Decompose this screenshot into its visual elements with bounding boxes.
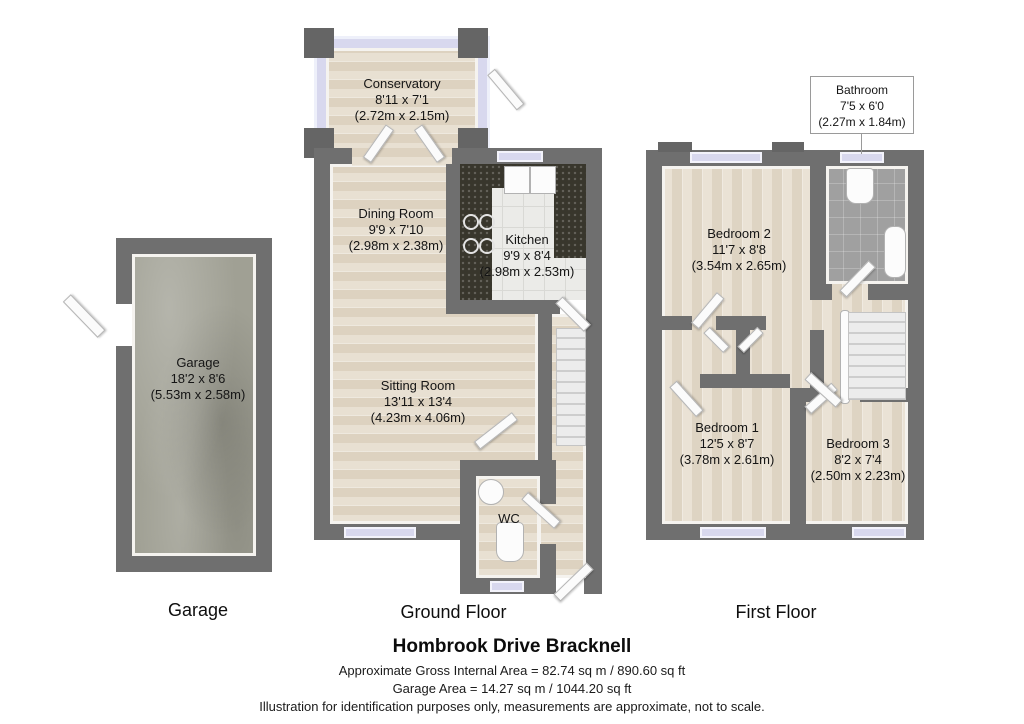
window bbox=[497, 151, 543, 162]
wall-post bbox=[304, 28, 334, 58]
wall bbox=[868, 284, 908, 300]
wall-post bbox=[658, 142, 692, 152]
room-size-metric: (2.72m x 2.15m) bbox=[312, 108, 492, 124]
room-name: Garage bbox=[118, 355, 278, 371]
room-label-dining-room: Dining Room 9'9 x 7'10 (2.98m x 2.38m) bbox=[318, 206, 474, 254]
window bbox=[840, 152, 884, 163]
wall bbox=[116, 556, 272, 572]
room-name: Bedroom 1 bbox=[646, 420, 808, 436]
room-size-metric: (2.50m x 2.23m) bbox=[780, 468, 936, 484]
wall bbox=[646, 150, 662, 540]
room-size-imperial: 7'5 x 6'0 bbox=[811, 98, 913, 114]
room-size-metric: (3.54m x 2.65m) bbox=[660, 258, 818, 274]
staircase bbox=[556, 328, 586, 446]
room-size-imperial: 13'11 x 13'4 bbox=[338, 394, 498, 410]
garage-floor bbox=[132, 254, 256, 556]
room-label-sitting-room: Sitting Room 13'11 x 13'4 (4.23m x 4.06m… bbox=[338, 378, 498, 426]
wc-toilet bbox=[496, 522, 524, 562]
room-name: Bedroom 2 bbox=[660, 226, 818, 242]
garage-side-door-leaf bbox=[63, 294, 106, 338]
staircase bbox=[848, 312, 906, 400]
kitchen-sink bbox=[530, 166, 556, 194]
room-label-kitchen: Kitchen 9'9 x 8'4 (2.98m x 2.53m) bbox=[462, 232, 592, 280]
room-label-garage: Garage 18'2 x 8'6 (5.53m x 2.58m) bbox=[118, 355, 278, 403]
room-name: Dining Room bbox=[318, 206, 474, 222]
window bbox=[852, 527, 906, 538]
room-name: Conservatory bbox=[312, 76, 492, 92]
room-name: Bedroom 3 bbox=[780, 436, 936, 452]
room-size-metric: (2.27m x 1.84m) bbox=[811, 114, 913, 130]
room-name: Sitting Room bbox=[338, 378, 498, 394]
room-size-metric: (5.53m x 2.58m) bbox=[118, 387, 278, 403]
room-size-imperial: 9'9 x 8'4 bbox=[462, 248, 592, 264]
window bbox=[490, 581, 524, 592]
wall-post bbox=[458, 28, 488, 58]
room-label-bathroom-callout: Bathroom 7'5 x 6'0 (2.27m x 1.84m) bbox=[810, 76, 914, 134]
wall bbox=[586, 148, 602, 592]
room-label-conservatory: Conservatory 8'11 x 7'1 (2.72m x 2.15m) bbox=[312, 76, 492, 124]
room-label-bedroom2: Bedroom 2 11'7 x 8'8 (3.54m x 2.65m) bbox=[660, 226, 818, 274]
floor-caption-first: First Floor bbox=[696, 602, 856, 623]
floor-caption-garage: Garage bbox=[118, 600, 278, 621]
wall bbox=[540, 460, 556, 504]
room-label-wc: WC bbox=[490, 511, 528, 527]
wall bbox=[446, 300, 560, 314]
wall bbox=[810, 284, 832, 300]
bathtub bbox=[884, 226, 906, 278]
callout-leader-line bbox=[861, 134, 862, 154]
room-name: Kitchen bbox=[462, 232, 592, 248]
floorplan-canvas: Garage 18'2 x 8'6 (5.53m x 2.58m) Conser… bbox=[0, 0, 1024, 724]
room-size-imperial: 8'11 x 7'1 bbox=[312, 92, 492, 108]
gross-internal-area-note: Approximate Gross Internal Area = 82.74 … bbox=[0, 663, 1024, 678]
kitchen-sink bbox=[504, 166, 530, 194]
page-title: Hombrook Drive Bracknell bbox=[0, 636, 1024, 658]
wall bbox=[116, 238, 272, 254]
garage-area-note: Garage Area = 14.27 sq m / 1044.20 sq ft bbox=[0, 681, 1024, 696]
wc-sink bbox=[478, 479, 504, 505]
room-label-bedroom3: Bedroom 3 8'2 x 7'4 (2.50m x 2.23m) bbox=[780, 436, 936, 484]
bathroom-toilet bbox=[846, 168, 874, 204]
room-size-imperial: 11'7 x 8'8 bbox=[660, 242, 818, 258]
wall bbox=[538, 314, 552, 460]
wall bbox=[700, 374, 790, 388]
conservatory-door-leaf bbox=[487, 69, 524, 111]
room-size-imperial: 9'9 x 7'10 bbox=[318, 222, 474, 238]
wall-post bbox=[772, 142, 804, 152]
wall bbox=[662, 316, 692, 330]
window bbox=[700, 527, 766, 538]
room-size-metric: (2.98m x 2.53m) bbox=[462, 264, 592, 280]
room-name: WC bbox=[490, 511, 528, 527]
room-size-imperial: 8'2 x 7'4 bbox=[780, 452, 936, 468]
floor-caption-ground: Ground Floor bbox=[366, 602, 541, 623]
hob-burner-icon bbox=[479, 214, 495, 230]
wall bbox=[584, 578, 602, 594]
room-name: Bathroom bbox=[811, 82, 913, 98]
window bbox=[344, 527, 416, 538]
disclaimer-note: Illustration for identification purposes… bbox=[0, 699, 1024, 714]
wall bbox=[256, 238, 272, 572]
window bbox=[690, 152, 762, 163]
room-size-metric: (4.23m x 4.06m) bbox=[338, 410, 498, 426]
room-size-imperial: 18'2 x 8'6 bbox=[118, 371, 278, 387]
wall bbox=[116, 238, 132, 304]
wall bbox=[460, 460, 476, 594]
room-size-metric: (2.98m x 2.38m) bbox=[318, 238, 474, 254]
